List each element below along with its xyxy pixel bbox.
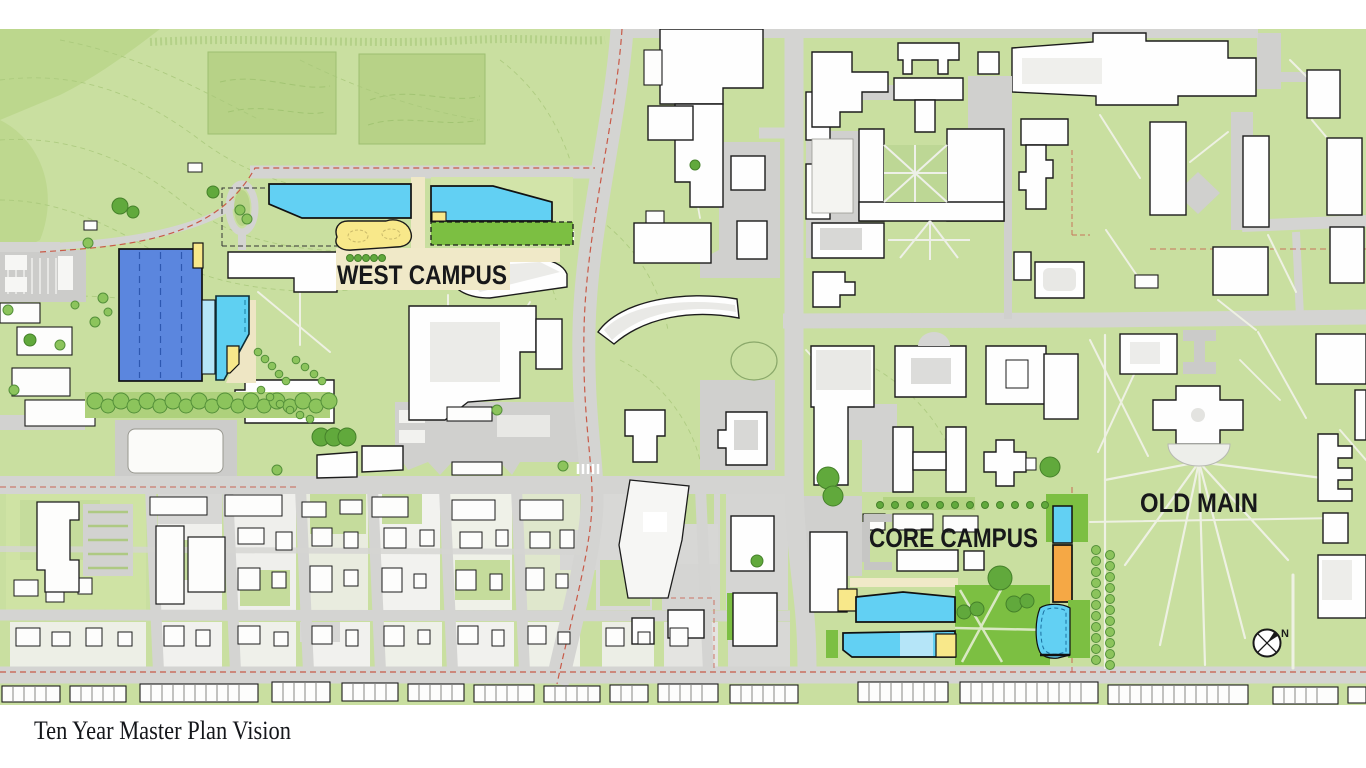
svg-text:Ten Year Master Plan Vision: Ten Year Master Plan Vision [34,716,291,745]
svg-text:OLD MAIN: OLD MAIN [1140,488,1258,518]
svg-text:CORE CAMPUS: CORE CAMPUS [869,523,1038,553]
svg-text:N: N [1281,628,1289,640]
svg-text:WEST CAMPUS: WEST CAMPUS [337,260,507,290]
